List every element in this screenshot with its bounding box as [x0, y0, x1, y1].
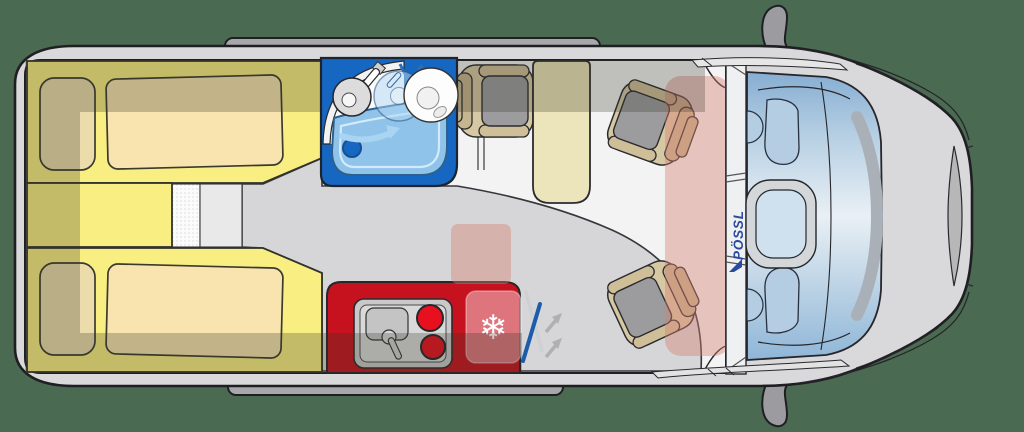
hob-burner-1 — [417, 305, 443, 331]
wardrobe-overlay — [451, 224, 511, 284]
floor-panel — [200, 184, 242, 247]
possl-logo-text: PÖSSL — [731, 210, 746, 260]
toilet-flush — [342, 93, 356, 107]
steering-wheel — [746, 180, 816, 268]
bathroom — [321, 58, 458, 186]
cab-zone-overlay — [665, 76, 730, 356]
dash-vent-bottom — [765, 268, 799, 333]
washbasin-bowl — [417, 87, 439, 109]
campervan-floorplan: ❄ — [0, 0, 1024, 432]
dash-vent-top — [765, 99, 799, 164]
step-mat-texture — [172, 184, 200, 247]
